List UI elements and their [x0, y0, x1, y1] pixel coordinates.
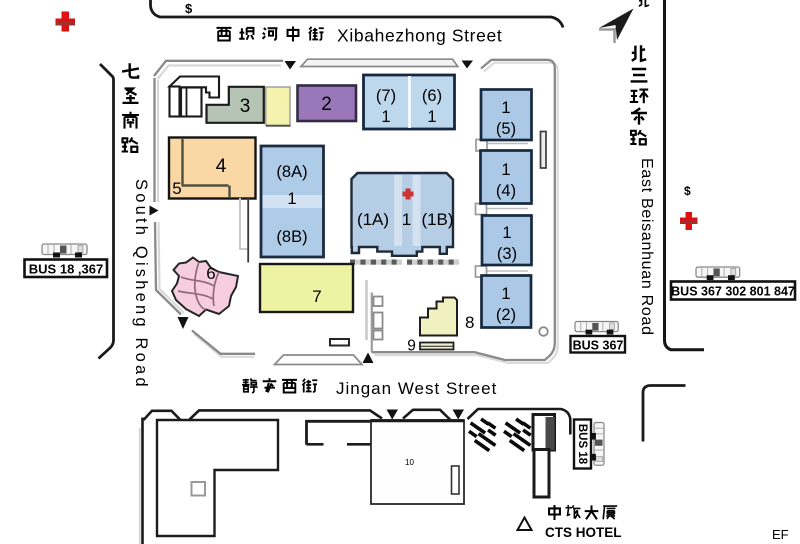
svg-text:(3): (3) — [497, 245, 517, 263]
svg-text:BUS 367: BUS 367 — [573, 339, 624, 353]
svg-text:6: 6 — [206, 264, 215, 283]
svg-text:2: 2 — [321, 94, 332, 115]
svg-text:8: 8 — [465, 313, 474, 332]
svg-text:East Beisanhuan Road: East Beisanhuan Road — [638, 158, 655, 336]
svg-text:(1A): (1A) — [357, 210, 389, 229]
svg-text:BUS 367 302 801 847: BUS 367 302 801 847 — [671, 285, 795, 299]
svg-text:$: $ — [185, 1, 193, 16]
svg-text:1: 1 — [427, 108, 436, 126]
svg-text:5: 5 — [172, 179, 181, 198]
svg-text:EF: EF — [772, 527, 789, 542]
svg-text:Jingan West Street: Jingan West Street — [336, 379, 497, 398]
svg-text:1: 1 — [287, 190, 296, 208]
svg-text:Xibahezhong Street: Xibahezhong Street — [337, 26, 502, 46]
svg-text:1: 1 — [502, 224, 511, 242]
svg-text:10: 10 — [405, 458, 414, 467]
svg-text:(8B): (8B) — [276, 228, 307, 246]
svg-text:1: 1 — [501, 161, 510, 179]
svg-text:BUS 18 ,367: BUS 18 ,367 — [29, 262, 103, 277]
svg-text:(7): (7) — [376, 87, 396, 105]
svg-text:1: 1 — [402, 210, 411, 229]
svg-text:(5): (5) — [496, 120, 516, 138]
svg-text:4: 4 — [216, 156, 227, 177]
svg-text:$: $ — [684, 184, 691, 198]
svg-text:(8A): (8A) — [276, 163, 307, 181]
svg-text:1: 1 — [381, 108, 390, 126]
svg-text:1: 1 — [501, 99, 510, 117]
svg-text:(4): (4) — [496, 182, 516, 200]
svg-text:(6): (6) — [422, 87, 442, 105]
svg-text:(1B): (1B) — [421, 210, 453, 229]
svg-text:(2): (2) — [496, 306, 516, 324]
svg-text:3: 3 — [240, 96, 251, 117]
svg-text:9: 9 — [407, 338, 416, 355]
svg-text:CTS HOTEL: CTS HOTEL — [545, 525, 622, 540]
svg-text:BUS 18: BUS 18 — [576, 424, 588, 465]
svg-text:1: 1 — [501, 285, 510, 303]
svg-text:South Qisheng Road: South Qisheng Road — [132, 179, 150, 390]
svg-text:7: 7 — [312, 287, 321, 306]
